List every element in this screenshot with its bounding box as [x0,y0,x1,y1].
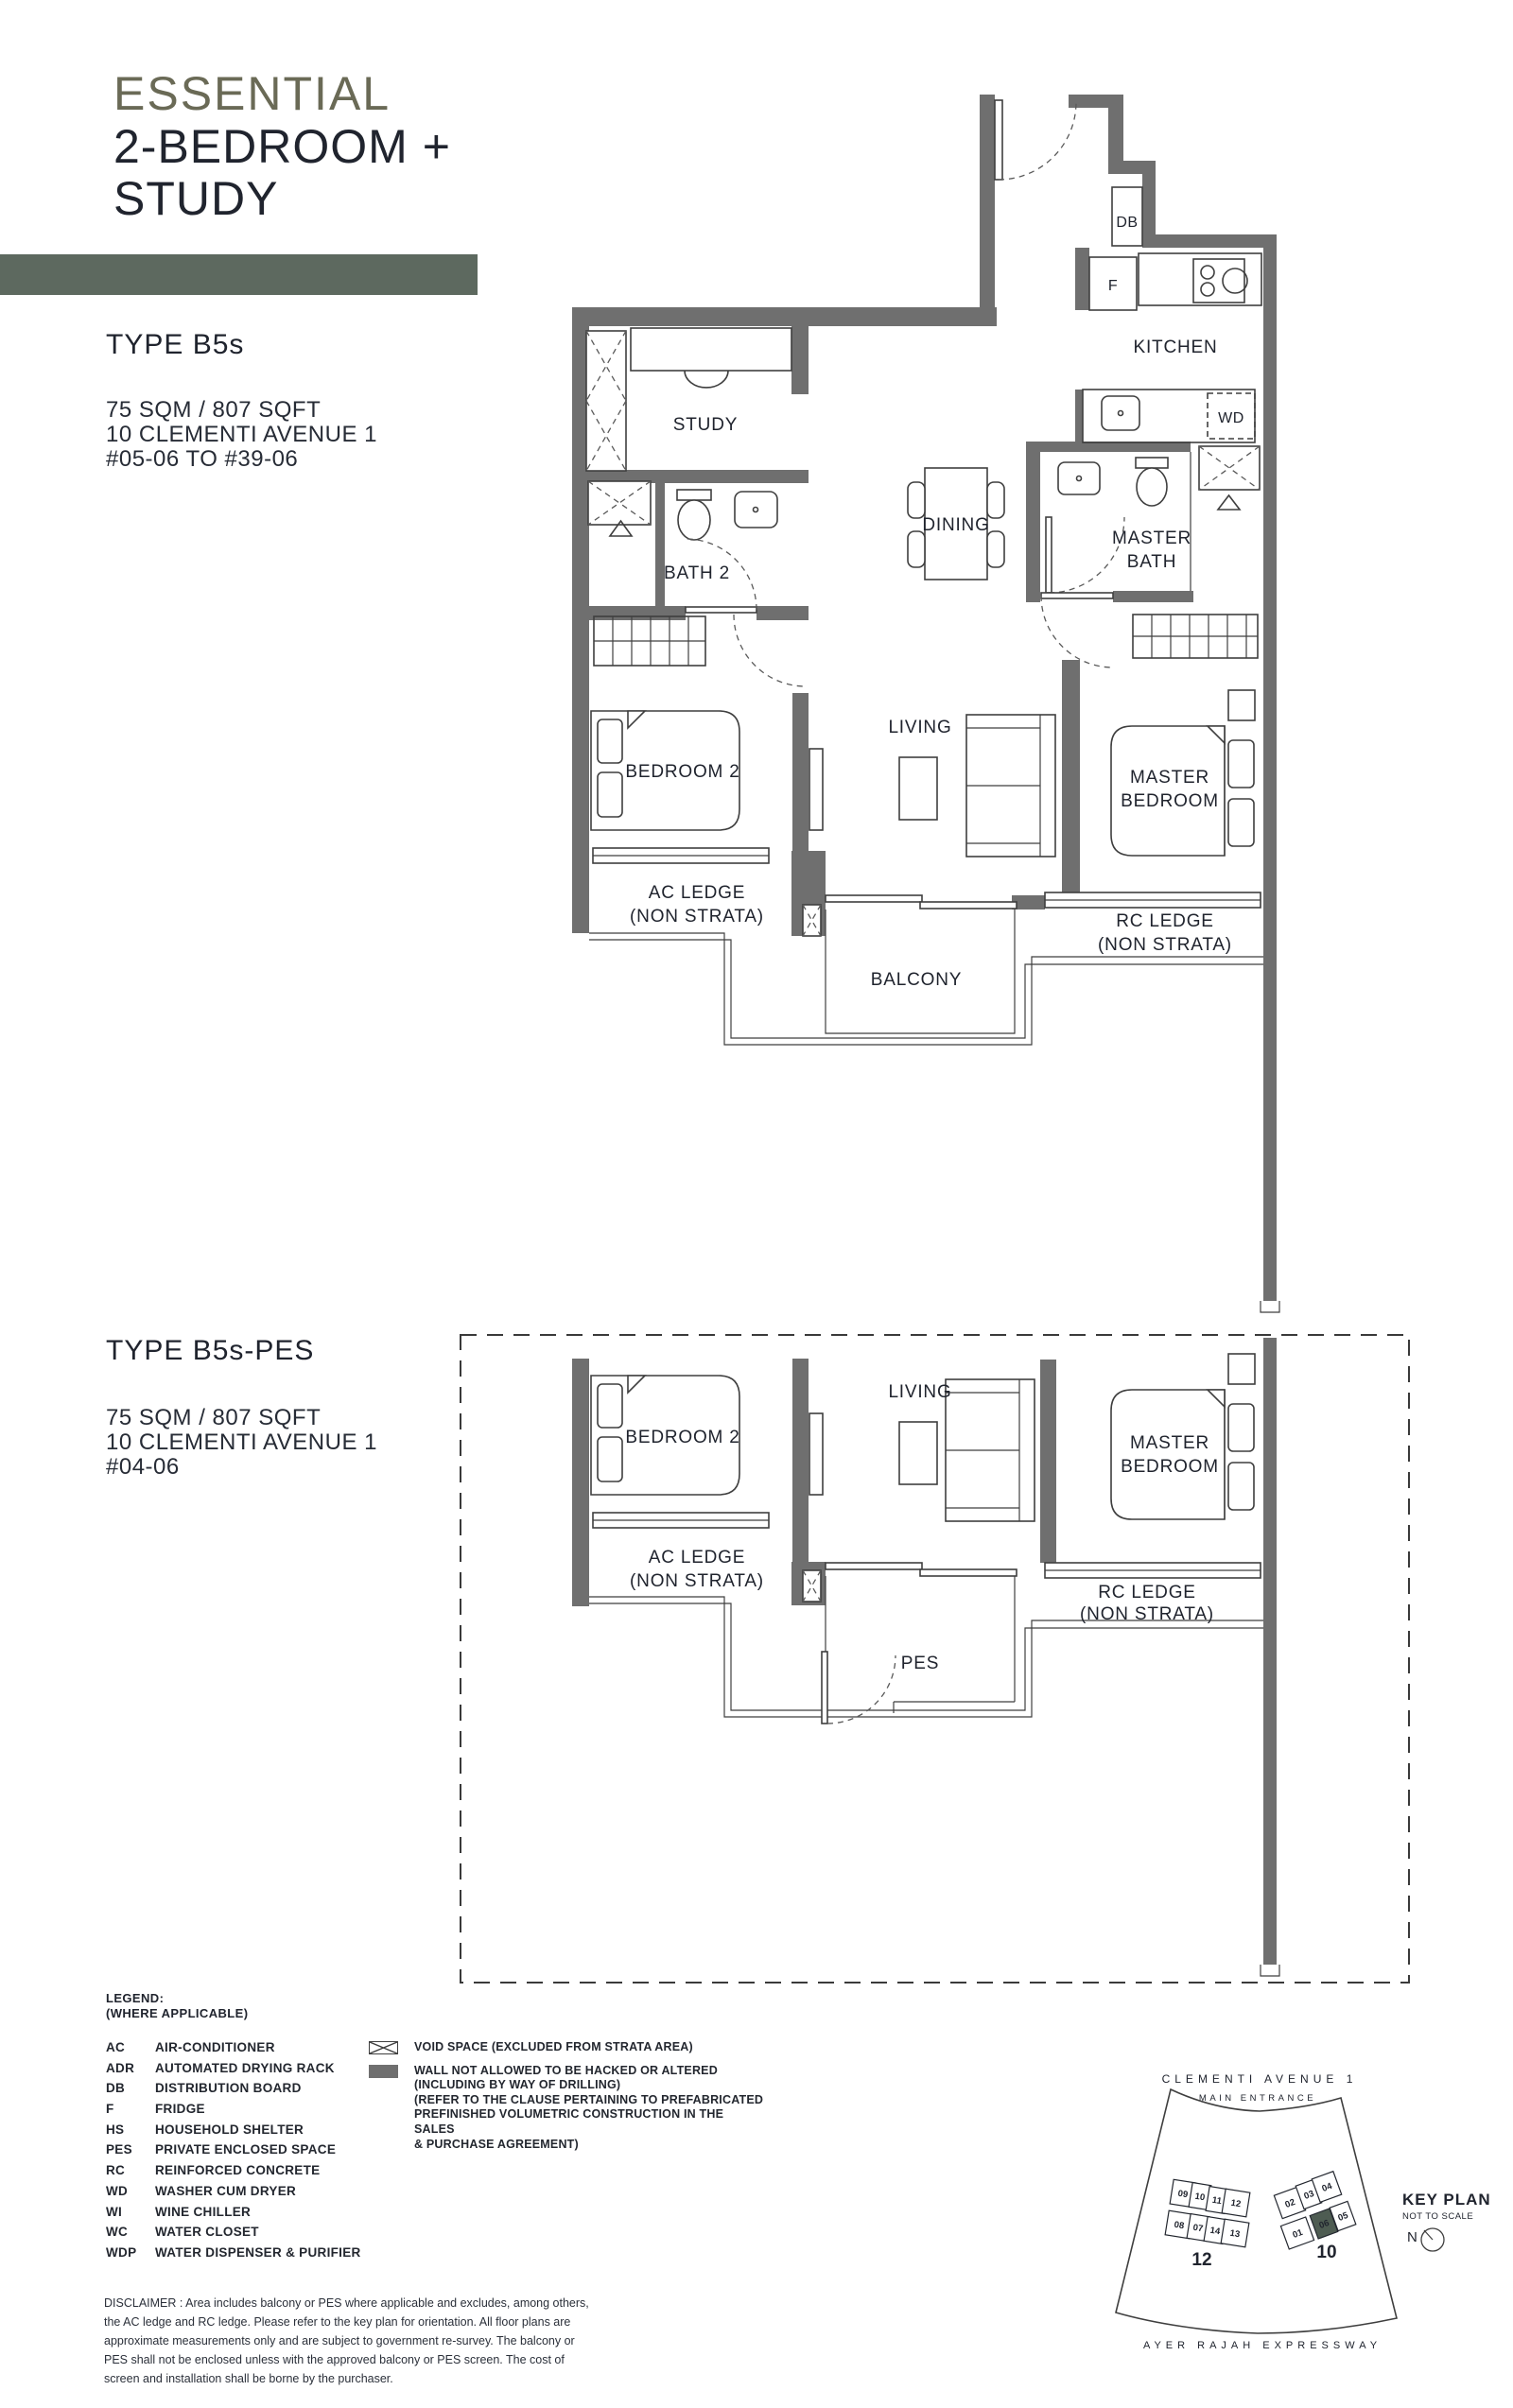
kitchen-sink [1102,396,1139,430]
plan2-label-master-bedroom-1: MASTER [1130,1433,1209,1453]
plan1-label-master-bedroom-2: BEDROOM [1121,791,1219,811]
master-bath-sink [1058,462,1100,494]
plan2-void-space [803,1570,821,1602]
keyplan-road-bottom: AYER RAJAH EXPRESSWAY [1143,2340,1382,2351]
legend-item: WDPWATER DISPENSER & PURIFIER [106,2245,418,2266]
legend-item: WIWINE CHILLER [106,2205,418,2226]
plan1-label-master-bath-2: BATH [1127,552,1176,572]
pes-door [822,1652,827,1724]
plan1-wardrobes [594,615,1258,666]
plan2-pes-outline [589,1576,1279,1976]
ac-marker-2 [1218,495,1240,510]
plan1-label-bedroom2: BEDROOM 2 [625,762,739,782]
coffee-table [899,1422,937,1484]
stove [1193,259,1244,303]
brochure-page: ESSENTIAL 2-BEDROOM + STUDY TYPE B5s 75 … [0,0,1513,2408]
keyplan-unit: 01 [1280,2217,1313,2249]
master-wc-bowl [1137,468,1167,506]
keyplan-unit: 12 [1222,2189,1250,2217]
plan2-label-rc-ledge-2: (NON STRATA) [1080,1604,1214,1624]
plan2-label-ac-ledge-1: AC LEDGE [649,1548,746,1568]
plan1-label-rc-ledge-2: (NON STRATA) [1098,935,1232,955]
plan1-walls [572,95,1277,1301]
plan1-label-kitchen: KITCHEN [1134,338,1218,357]
master-wc-tank [1136,458,1168,468]
plan1-label-living: LIVING [888,718,951,737]
bedside-table [1228,690,1255,720]
bedside-table [1228,1354,1255,1384]
keyplan-unit: 13 [1221,2219,1249,2247]
plan2-label-master-bedroom-2: BEDROOM [1121,1457,1219,1477]
svg-text:12: 12 [1230,2198,1242,2210]
keyplan-title: KEY PLAN [1402,2191,1491,2209]
plan2-floorplan: LIVING BEDROOM 2 MASTER BEDROOM AC LEDGE… [461,1335,1409,1983]
disclaimer-text: DISCLAIMER : Area includes balcony or PE… [104,2294,596,2388]
keyplan-tower-12: 09 10 11 12 08 07 14 [1165,2179,1250,2270]
legend-title: LEGEND: [106,1991,164,2005]
plan1-bath2-fixtures [677,490,806,686]
plan2-label-bedroom2: BEDROOM 2 [625,1428,739,1447]
plan1-study-fixtures [631,328,791,388]
plan2-windows [593,1513,1261,1578]
legend-void-symbol-row: VOID SPACE (EXCLUDED FROM STRATA AREA) [369,2040,766,2055]
plan1-label-bath2: BATH 2 [664,563,730,583]
legend-subtitle: (WHERE APPLICABLE) [106,2006,248,2020]
plan2-label-rc-ledge-1: RC LEDGE [1098,1583,1196,1602]
legend-item: WDWASHER CUM DRYER [106,2184,418,2205]
study-chair [685,371,728,388]
keyplan-site-boundary [1116,2089,1397,2333]
keyplan-scale-note: NOT TO SCALE [1402,2211,1473,2222]
north-label: N [1407,2229,1417,2245]
plan1-label-dining: DINING [922,515,989,535]
master-bedroom-door [1041,593,1113,598]
keyplan-tower-10-label: 10 [1316,2243,1336,2262]
study-desk [631,328,791,371]
plan1-floorplan: DB F KITCHEN WD STUDY BATH 2 DINING MAST… [572,95,1279,1312]
plan2-label-pes: PES [901,1654,939,1673]
coffee-table [899,757,937,820]
svg-text:10: 10 [1194,2191,1206,2204]
svg-text:09: 09 [1177,2189,1189,2201]
balcony-sliding-door [826,895,922,902]
svg-text:13: 13 [1229,2228,1241,2241]
plan1-entrance-door [995,100,1076,180]
plan2-label-living: LIVING [888,1382,951,1402]
wc-tank [677,490,711,500]
legend-wall-symbol-row: WALL NOT ALLOWED TO BE HACKED OR ALTERED… [369,2064,766,2153]
legend-item: RCREINFORCED CONCRETE [106,2163,418,2184]
structural-wall-icon [369,2065,398,2078]
void-space-icon [369,2041,398,2054]
keyplan: CLEMENTI AVENUE 1 MAIN ENTRANCE 09 10 11… [1116,2072,1491,2351]
pes-sliding-door [826,1563,922,1569]
north-compass-icon [1421,2228,1444,2251]
tv-console [809,1413,823,1495]
kitchen-counter-top [1139,253,1261,305]
plan1-label-study: STUDY [673,415,738,435]
plan2-label-ac-ledge-2: (NON STRATA) [630,1571,764,1591]
plan1-label-fridge: F [1108,278,1118,294]
wc-bowl [678,500,710,540]
bath2-sink [735,492,777,528]
master-bath-door [1046,517,1052,593]
keyplan-tower-12-label: 12 [1191,2250,1211,2270]
plan1-label-wd: WD [1218,410,1244,426]
plan1-label-ac-ledge-2: (NON STRATA) [630,907,764,927]
legend-symbols: VOID SPACE (EXCLUDED FROM STRATA AREA) W… [369,2040,766,2160]
tv-console [809,749,823,830]
plan1-label-balcony: BALCONY [871,970,962,990]
keyplan-main-entrance: MAIN ENTRANCE [1199,2093,1316,2104]
svg-text:07: 07 [1192,2223,1204,2235]
plan1-label-ac-ledge-1: AC LEDGE [649,883,746,903]
plan1-label-rc-ledge-1: RC LEDGE [1116,911,1214,931]
svg-text:08: 08 [1174,2220,1185,2232]
plan1-label-db: DB [1116,215,1138,231]
keyplan-road-top: CLEMENTI AVENUE 1 [1162,2072,1358,2086]
keyplan-tower-10: 02 03 04 01 06 05 10 [1274,2172,1356,2262]
bath2-door [686,607,756,613]
legend-item: WCWATER CLOSET [106,2225,418,2245]
plan1-label-master-bedroom-1: MASTER [1130,768,1209,788]
plan1-label-master-bath-1: MASTER [1112,528,1191,548]
